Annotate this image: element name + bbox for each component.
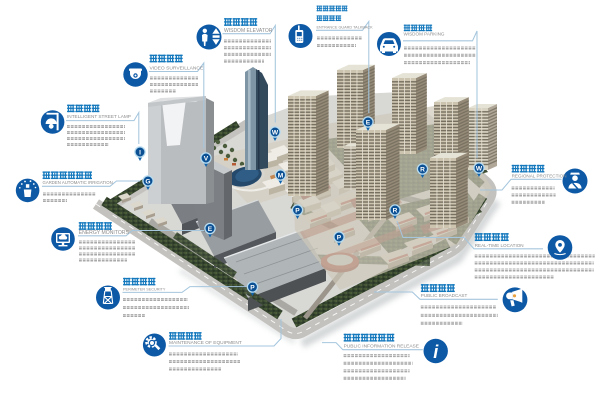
- svg-text:REAL-TIME LOCATION: REAL-TIME LOCATION: [475, 243, 524, 248]
- svg-text:P: P: [295, 207, 300, 214]
- svg-text:INTELLIGENT STREET LAMP: INTELLIGENT STREET LAMP: [67, 114, 131, 119]
- svg-text:W: W: [272, 129, 279, 136]
- svg-text:E: E: [366, 119, 371, 126]
- svg-text:E: E: [208, 226, 213, 233]
- svg-text:VIDEO SURVEILLANCE: VIDEO SURVEILLANCE: [150, 65, 204, 71]
- svg-text:W: W: [476, 165, 483, 172]
- svg-text:REGIONAL PROTECTION: REGIONAL PROTECTION: [512, 173, 567, 178]
- svg-text:P: P: [337, 234, 342, 241]
- svg-text:ENTRANCE GUARD TALKBACK: ENTRANCE GUARD TALKBACK: [317, 26, 374, 30]
- svg-text:PERIMETER SECURITY: PERIMETER SECURITY: [123, 287, 166, 291]
- svg-text:G: G: [145, 178, 150, 185]
- svg-text:MAINTENANCE OF EQUIPMENT: MAINTENANCE OF EQUIPMENT: [169, 340, 242, 346]
- svg-text:WISDOM PARKING: WISDOM PARKING: [404, 31, 445, 36]
- svg-text:PUBLIC INFORMATION RELEASE: PUBLIC INFORMATION RELEASE: [344, 344, 419, 350]
- svg-text:R: R: [420, 166, 425, 173]
- svg-text:V: V: [204, 155, 209, 162]
- svg-text:GARDEN AUTOMATIC IRRIGATION: GARDEN AUTOMATIC IRRIGATION: [43, 180, 113, 185]
- svg-text:M: M: [278, 172, 284, 179]
- svg-text:PUBLIC BROADCAST: PUBLIC BROADCAST: [421, 293, 468, 298]
- svg-text:I: I: [139, 149, 141, 156]
- svg-text:ENERGY MONITORS: ENERGY MONITORS: [79, 230, 130, 236]
- svg-text:P: P: [250, 284, 255, 291]
- svg-text:R: R: [393, 207, 398, 214]
- svg-text:WISDOM ELEVATOR: WISDOM ELEVATOR: [224, 28, 273, 34]
